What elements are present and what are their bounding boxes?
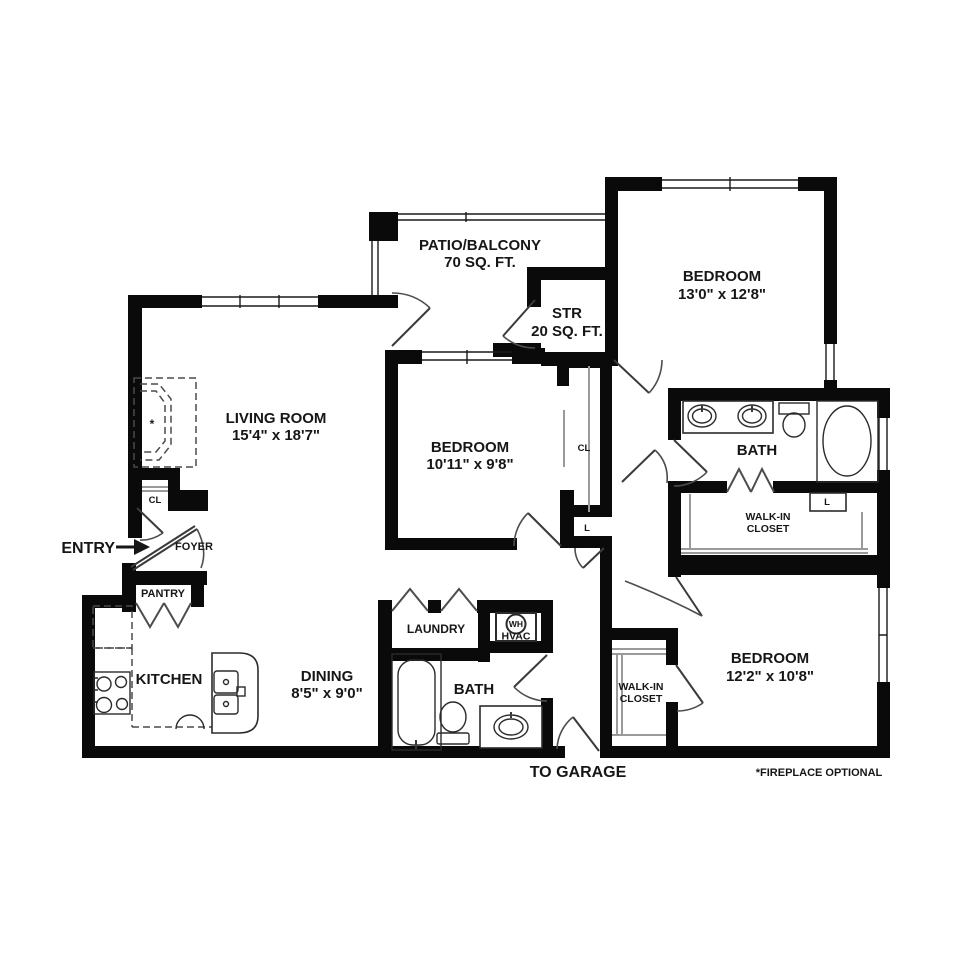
storage-name: STR — [552, 305, 582, 322]
bedroom-bottom-dims: 12'2" x 10'8" — [726, 668, 814, 685]
to-garage-label: TO GARAGE — [530, 764, 627, 781]
kitchen-peninsula — [212, 653, 258, 733]
dining-name: DINING — [301, 668, 354, 685]
bedroom-bottom-name: BEDROOM — [731, 650, 809, 667]
toilet — [437, 702, 469, 744]
bedroom-mid-door — [514, 513, 561, 546]
foyer-closet-label: CL — [149, 495, 162, 506]
kitchen-name: KITCHEN — [136, 671, 203, 688]
entry-label: ENTRY — [61, 540, 115, 557]
bath-bottom-name: BATH — [454, 681, 495, 698]
hvac-label: HVAC — [502, 631, 531, 643]
living-room-dims: 15'4" x 18'7" — [232, 427, 320, 444]
dining-dims: 8'5" x 9'0" — [291, 685, 362, 702]
bath-bottom-fixtures — [392, 654, 542, 750]
bedroom-mid-dims: 10'11" x 9'8" — [426, 456, 513, 473]
bedroom-mid-name: BEDROOM — [431, 439, 509, 456]
bath-bottom-door — [514, 655, 547, 701]
bathtub — [817, 401, 878, 482]
bedroom-closet-label: CL — [578, 443, 591, 454]
walkin-top-line2: CLOSET — [747, 523, 790, 535]
patio-name: PATIO/BALCONY — [419, 237, 541, 254]
foyer-name: FOYER — [175, 541, 213, 553]
fireplace-note: *FIREPLACE OPTIONAL — [756, 767, 883, 779]
fireplace-star: * — [150, 417, 155, 431]
pantry-doors — [136, 603, 191, 627]
linen-hall-door — [575, 548, 604, 568]
fireplace-optional: * — [134, 378, 196, 467]
walkin-top-line1: WALK-IN — [746, 511, 791, 523]
living-room-window — [202, 295, 318, 308]
garage-door — [557, 717, 599, 751]
double-vanity — [683, 401, 773, 433]
hall-door — [622, 450, 667, 483]
bedroom-top-window — [662, 177, 798, 191]
walkin-bottom-line2: CLOSET — [620, 693, 663, 705]
bathtub — [392, 654, 441, 750]
toilet — [779, 403, 809, 437]
bedroom-bottom-window — [879, 588, 887, 682]
linen-bath-label: L — [824, 497, 830, 508]
refrigerator — [93, 606, 132, 648]
walkin-bottom-line1: WALK-IN — [619, 681, 664, 693]
bedroom-top-name: BEDROOM — [683, 268, 761, 285]
bedroom-bottom-door — [625, 577, 702, 616]
pantry-name: PANTRY — [141, 588, 186, 600]
walkin-top-doors — [727, 469, 774, 492]
bedroom-top-side-window — [826, 344, 834, 380]
living-room-name: LIVING ROOM — [226, 410, 327, 427]
kitchen-fixtures — [93, 606, 258, 733]
stove — [94, 672, 130, 714]
bedroom-top-door — [614, 360, 662, 393]
linen-hall-label: L — [584, 523, 590, 534]
storage-area: 20 SQ. FT. — [531, 323, 603, 340]
tub-window — [879, 418, 887, 470]
laundry-name: LAUNDRY — [407, 622, 465, 636]
floorplan-page: WH HVAC * — [0, 0, 960, 960]
bath-top-name: BATH — [737, 442, 778, 459]
water-heater-label: WH — [509, 619, 523, 629]
water-heater-closet: WH HVAC — [496, 613, 536, 643]
entry-arrow — [116, 539, 150, 555]
bedroom-top-dims: 13'0" x 12'8" — [678, 286, 766, 303]
arrow-head-icon — [134, 539, 150, 555]
bath-top-fixtures — [683, 401, 878, 482]
vanity — [480, 706, 542, 748]
bath-top-door — [674, 440, 707, 486]
patio-area: 70 SQ. FT. — [444, 254, 516, 271]
floorplan-drawing: WH HVAC * — [0, 0, 960, 960]
walkin-bottom-door — [676, 665, 703, 711]
